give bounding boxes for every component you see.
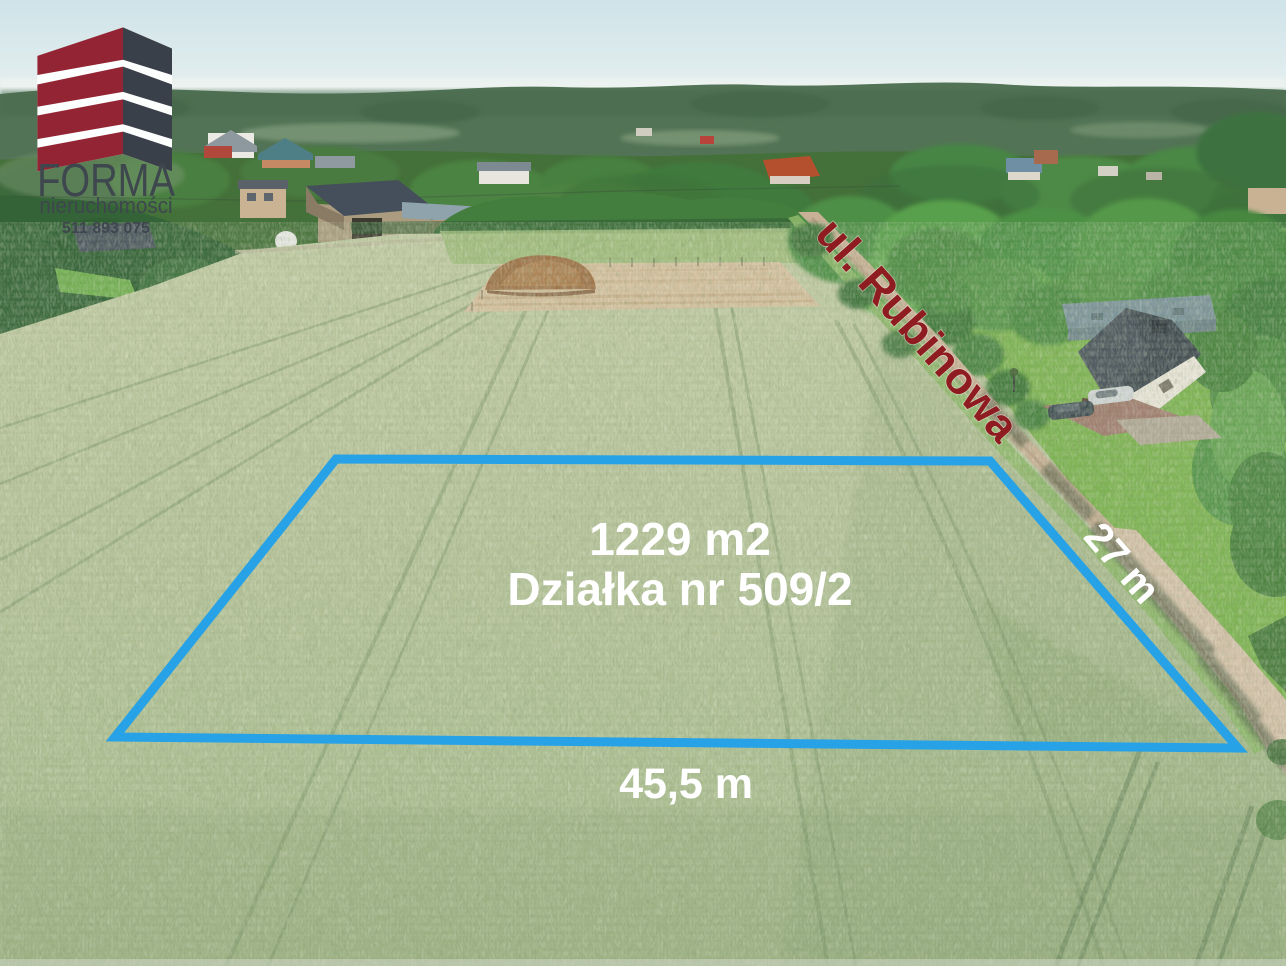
svg-text:nieruchomości: nieruchomości [39,193,172,218]
svg-text:511 893 075: 511 893 075 [62,220,150,237]
svg-text:1229 m2: 1229 m2 [589,513,771,565]
svg-text:Działka nr 509/2: Działka nr 509/2 [507,563,852,615]
svg-text:45,5 m: 45,5 m [619,760,753,808]
